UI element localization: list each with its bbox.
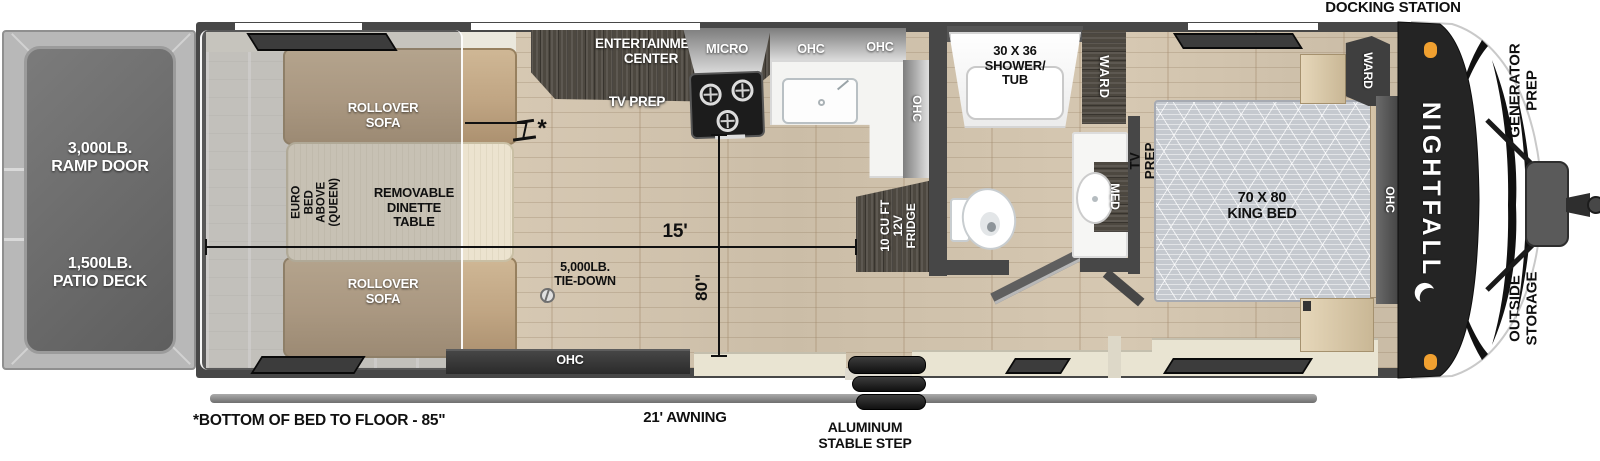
hall-bottom-window [1005,358,1071,374]
jack-ball-icon [1588,197,1600,213]
sink-drain-icon [818,99,825,106]
ramp-door-panel [24,46,176,354]
bath-wall-bottom [929,260,1009,275]
outside-storage-label: OUTSIDE STORAGE [1496,256,1552,360]
brand-name: NIGHTFALL [1416,102,1444,278]
garage-bottom-window [250,356,365,374]
bath-wall-left [929,28,947,276]
wall-window-bar [1188,23,1318,30]
height-dim-tick [711,134,727,136]
marker-light-icon [1424,42,1437,58]
bed-height-asterisk: * [532,116,552,143]
shower-label: 30 X 36 SHOWER/ TUB [952,44,1078,88]
height-dimension-line [718,134,720,357]
length-dimension-label: 15' [648,221,702,242]
entry-step-tread [856,394,926,410]
kitchen-ohc-label-1: OHC [786,42,836,56]
dinette-table-label: REMOVABLE DINETTE TABLE [348,186,480,230]
kitchen-ohc-label-2: OHC [855,40,905,54]
euro-bed-label: EURO BED ABOVE (QUEEN) [290,142,342,262]
entry-step-tread [852,376,926,392]
height-dim-tick [711,355,727,357]
entry-step-tread [848,356,926,374]
wall-window-bar [446,380,665,386]
patio-deck-label: 1,500LB. PATIO DECK [24,255,176,291]
tie-down-anchor-icon [540,288,555,303]
cooktop [689,71,765,140]
bed-height-footnote: *BOTTOM OF BED TO FLOOR - 85" [193,412,523,429]
wall-window-bar [250,380,335,386]
tongue-jack [1566,193,1590,217]
bedroom-top-window [1173,33,1303,49]
wall-window-bar [1187,380,1317,386]
kitchen-ohc-side-label: OHC [903,78,929,140]
nightstand-bottom [1300,298,1374,352]
bedroom-tv-prep-label: TV PREP [1132,124,1154,198]
faucet-icon [837,80,849,91]
kitchen-sink [782,78,858,124]
marker-light-icon [1424,354,1437,370]
awning-bar [210,394,1317,403]
burner-icon [699,83,722,106]
brand-logo: NIGHTFALL [1404,70,1456,340]
length-dim-tick [205,239,207,255]
step-label: ALUMINUM STABLE STEP [790,420,940,451]
tie-down-label: 5,000LB. TIE-DOWN [520,260,650,288]
length-dim-tick [855,239,857,255]
med-cabinet-label: MED [1100,166,1128,228]
wall-window-bar [1015,380,1070,386]
ramp-frame-notch [4,238,26,241]
awning-label: 21' AWNING [610,410,760,427]
bedroom-bottom-window [1163,358,1313,374]
living-tv-prep-label: TV PREP [582,94,692,109]
burner-icon [716,110,739,133]
rollover-sofa-bottom-label: ROLLOVER SOFA [323,277,443,306]
burner-icon [731,79,754,102]
bath-wardrobe-label: WARD [1082,30,1126,124]
wall-window-bar [235,23,362,30]
microwave-label: MICRO [683,42,771,57]
ramp-frame-bevel [171,33,191,53]
toilet [950,186,1022,258]
propane-box [1526,162,1568,246]
wall-window-bar [471,23,700,30]
length-dimension-line [205,246,857,248]
crescent-moon-icon [1420,288,1440,308]
king-bed-label: 70 X 80 KING BED [1192,190,1332,222]
nightstand-top [1300,54,1346,104]
generator-prep-label: GENERATOR PREP [1496,32,1552,148]
garage-top-window [246,33,397,51]
garage-ohc-label: OHC [540,353,600,367]
height-dimension-label: 80" [690,262,714,312]
ramp-frame-notch [4,168,26,171]
floorplan-canvas: DOCKING STATION 3,000LB. RAMP DOOR 1,500… [0,0,1600,461]
bench-divider [1108,336,1121,378]
rollover-sofa-top-label: ROLLOVER SOFA [323,101,443,130]
ramp-frame-bevel [171,345,191,365]
ramp-door-label: 3,000LB. RAMP DOOR [24,140,176,176]
